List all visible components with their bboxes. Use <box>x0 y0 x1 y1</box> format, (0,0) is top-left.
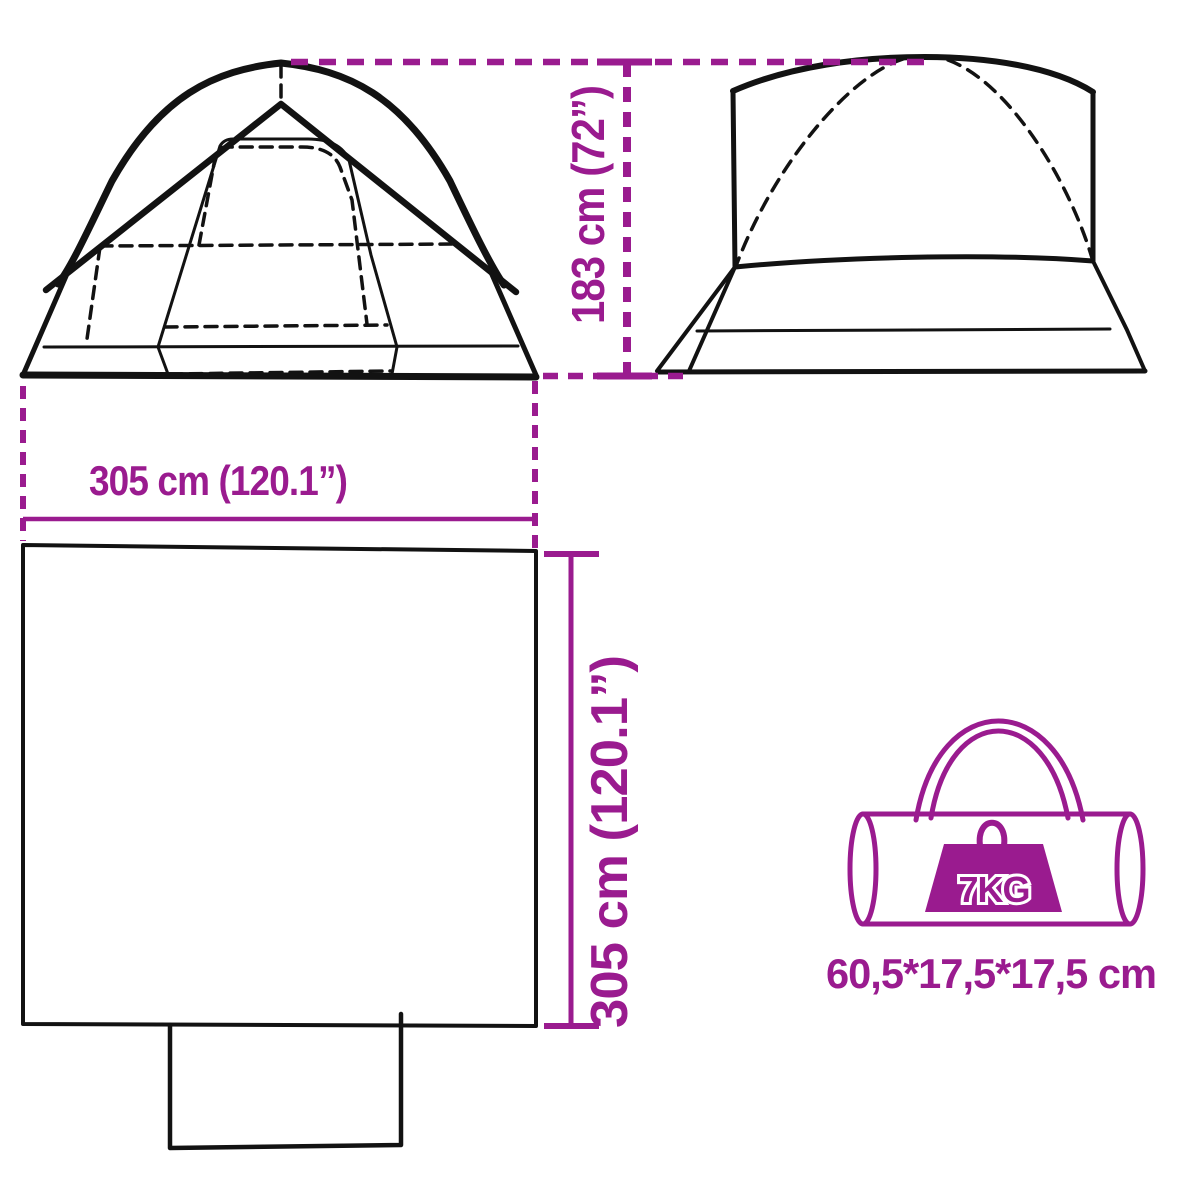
tent-mid-dashed-line <box>100 244 458 246</box>
side-left-edge <box>733 91 735 267</box>
height-dimension-label: 183 cm (72”) <box>562 86 614 324</box>
tent-side-view-drawing <box>657 57 1145 372</box>
side-pole-arc-left <box>736 59 903 266</box>
bag-size-label: 60,5*17,5*17,5 cm <box>826 950 1156 997</box>
weight-handle-loop <box>980 823 1005 846</box>
side-pole-arc-right <box>948 60 1092 258</box>
tent-body-left-edge <box>23 267 70 375</box>
product-dimension-diagram: 183 cm (72”) 305 cm (120.1”) 305 cm (120… <box>0 0 1200 1200</box>
side-skirt-right-edge <box>1093 261 1145 371</box>
tent-door-inner-dashed <box>199 147 367 324</box>
floorplan-vestibule-rectangle <box>170 1014 401 1148</box>
diagram-canvas: 183 cm (72”) 305 cm (120.1”) 305 cm (120… <box>0 0 1200 1200</box>
tent-left-dashed-diagonal <box>86 247 100 346</box>
width-dimension-label: 305 cm (120.1”) <box>89 457 347 504</box>
tent-ground-line <box>23 375 536 377</box>
tent-floor-seam <box>44 346 518 347</box>
side-pole-arcs <box>736 59 1092 266</box>
tent-fly-aframe <box>46 104 516 292</box>
tent-floorplan-drawing <box>23 545 536 1148</box>
bag-left-end <box>850 814 876 924</box>
side-skirt-seam <box>697 329 1110 331</box>
depth-dimension-label: 305 cm (120.1”) <box>581 656 639 1028</box>
bag-right-end <box>1117 814 1143 924</box>
tent-front-view-drawing <box>23 63 536 377</box>
weight-label: 7KG <box>958 869 1029 910</box>
side-ground-line <box>658 371 1145 372</box>
bag-handle-outer <box>916 721 1083 820</box>
side-mid-seam <box>735 257 1093 267</box>
floorplan-rectangle <box>23 545 536 1026</box>
tent-lower-dashed-line <box>165 325 387 327</box>
